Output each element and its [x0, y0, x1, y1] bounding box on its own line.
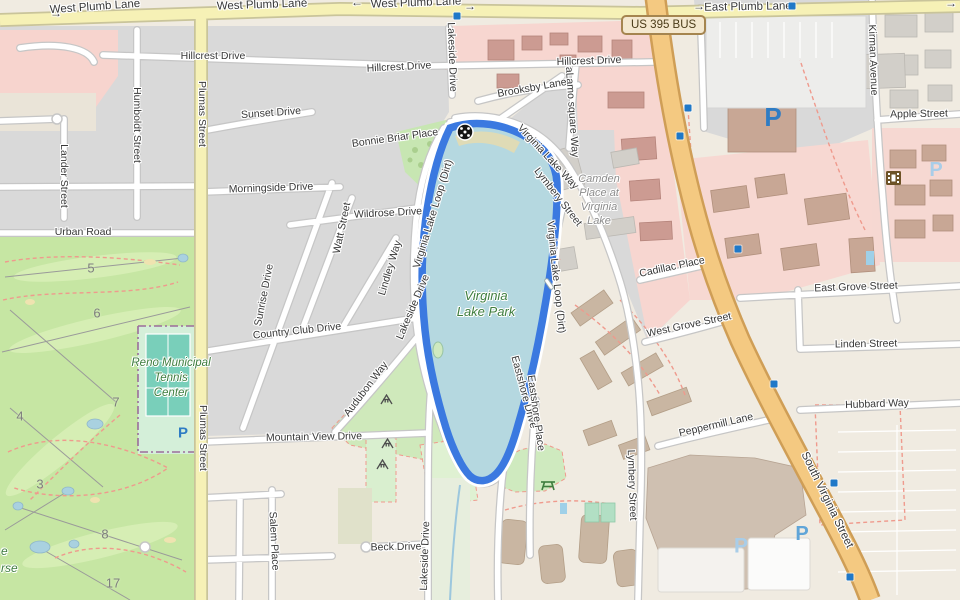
map-base-art: [0, 0, 960, 600]
tennis-center: [138, 326, 200, 454]
lake-island: [433, 342, 443, 358]
route-shield-us395bus: US 395 BUS: [621, 15, 706, 35]
map-canvas[interactable]: West Plumb LaneWest Plumb LaneWest Plumb…: [0, 0, 960, 600]
